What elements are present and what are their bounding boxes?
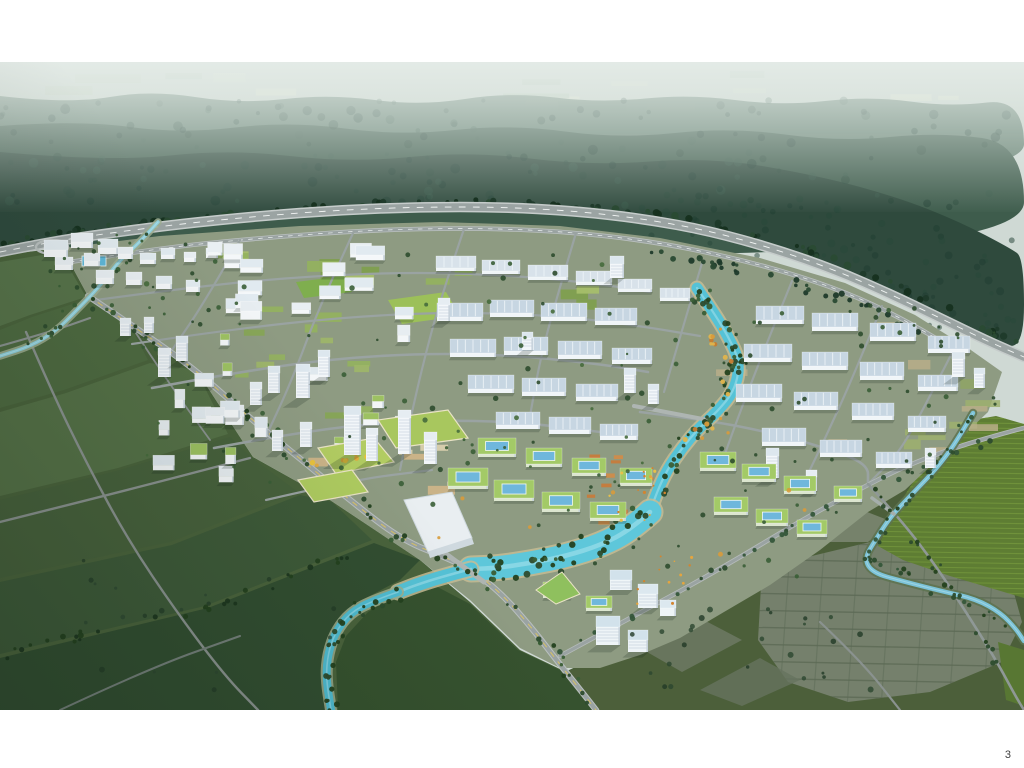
masterplan-aerial-render [0,62,1024,710]
page-number: 3 [1005,750,1011,761]
render-scene-canvas [0,62,1024,710]
presentation-slide: 3 [0,0,1024,768]
